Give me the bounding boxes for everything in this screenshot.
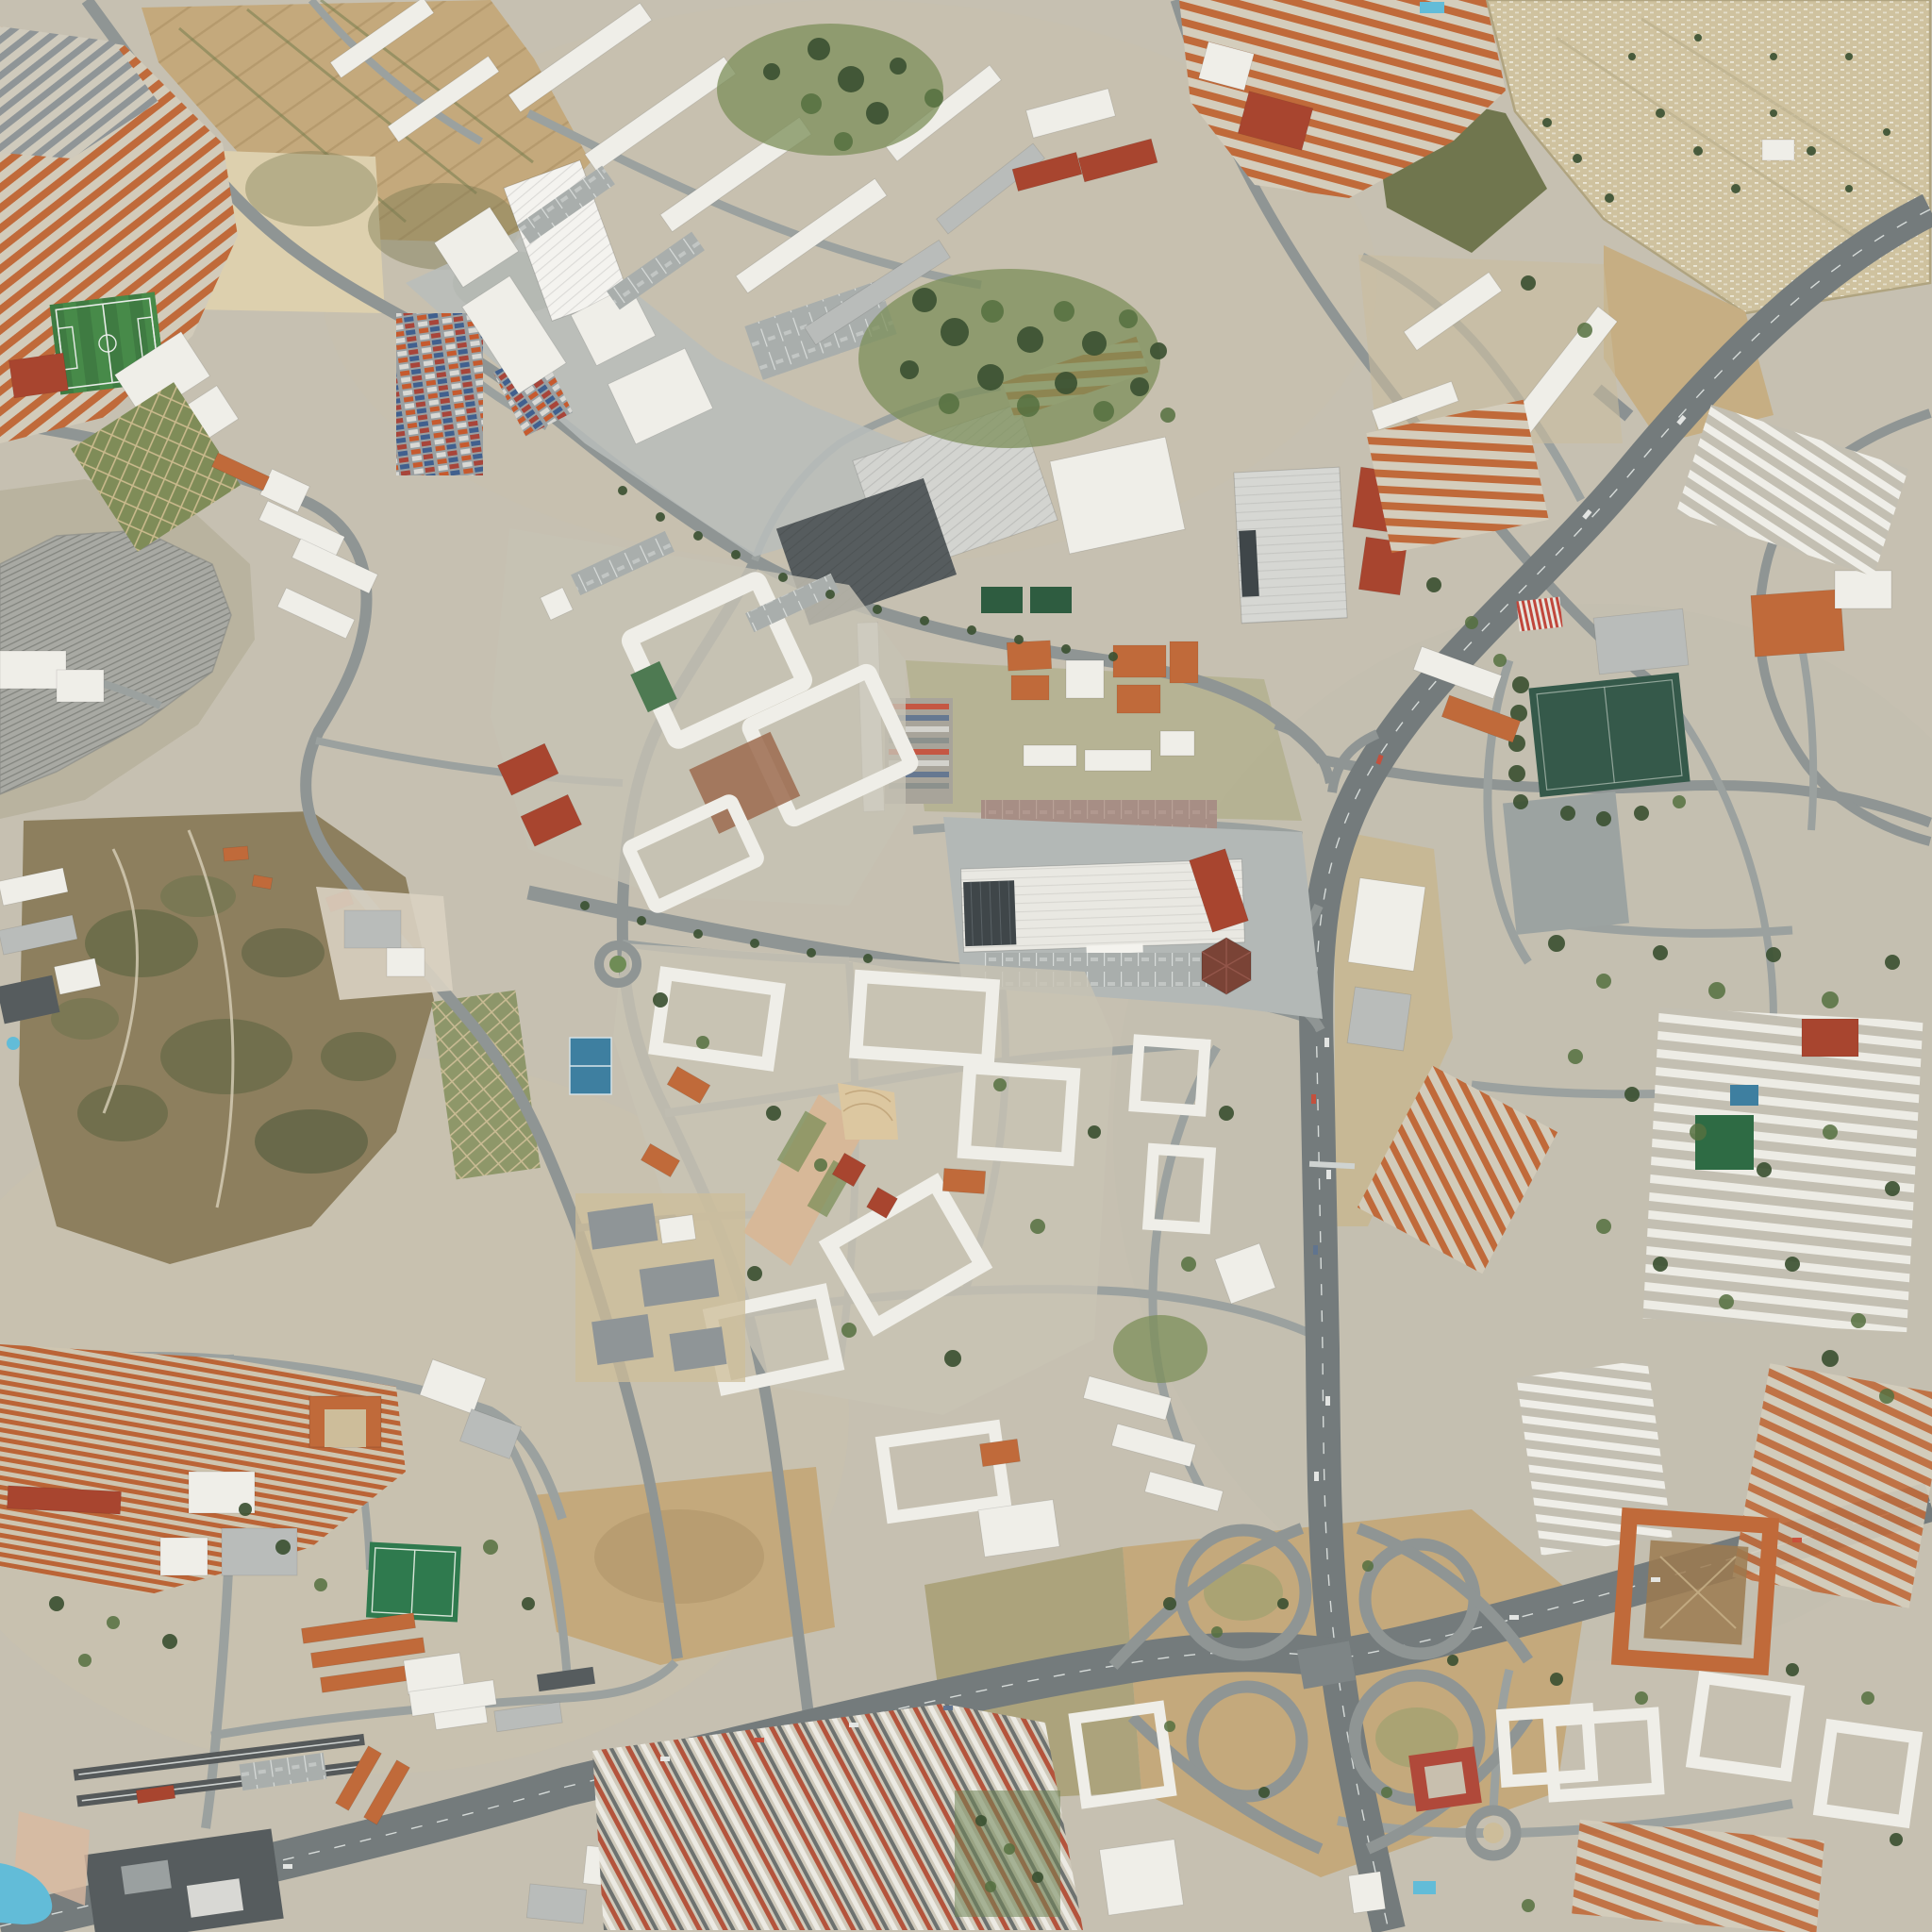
cemetery-chapel: [1762, 140, 1794, 160]
district-west-center: [491, 528, 912, 908]
sports-hall-gray: [1593, 608, 1689, 675]
sport-courts-blue: [570, 1038, 611, 1094]
pool-west: [7, 1037, 20, 1050]
container-yard-west: [396, 313, 483, 475]
pool-top-right: [1420, 2, 1444, 13]
white-rows-se: [1516, 1359, 1672, 1556]
school-orange-roof: [1751, 590, 1844, 657]
white-slab-grid-east: [1643, 1008, 1924, 1332]
court-green-b: [1030, 587, 1072, 613]
school-orange-u-building: [309, 1396, 381, 1447]
court-green-a: [981, 587, 1023, 613]
clubhouse-red-roof: [8, 353, 68, 398]
satellite-map[interactable]: [0, 0, 1932, 1932]
pool-southeast: [1413, 1881, 1436, 1894]
turf-field-south: [366, 1542, 461, 1623]
red-u-complex: [1408, 1746, 1482, 1811]
grandstand-red-striped: [1516, 597, 1562, 632]
